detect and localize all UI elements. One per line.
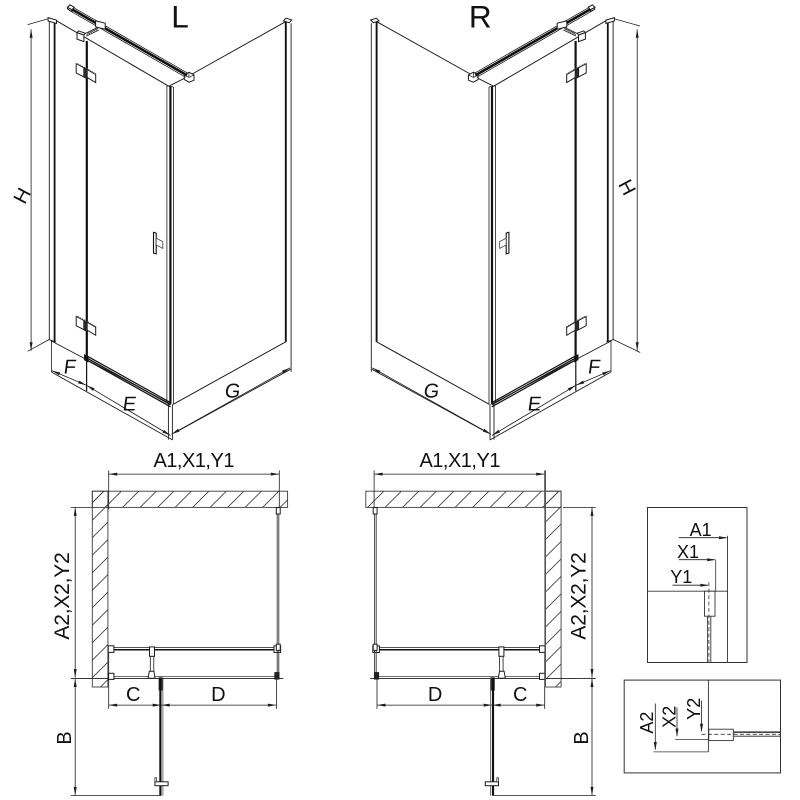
svg-text:L: L	[171, 0, 189, 35]
svg-text:X2: X2	[659, 706, 679, 728]
svg-text:A2: A2	[637, 712, 657, 734]
svg-text:A2,X2,Y2: A2,X2,Y2	[568, 552, 591, 639]
svg-text:G: G	[223, 381, 242, 403]
svg-text:B: B	[571, 731, 593, 744]
svg-text:C: C	[513, 684, 527, 706]
svg-text:A2,X2,Y2: A2,X2,Y2	[51, 552, 74, 639]
svg-text:A1,X1,Y1: A1,X1,Y1	[419, 450, 500, 472]
svg-text:C: C	[126, 684, 140, 706]
svg-text:D: D	[428, 684, 442, 706]
svg-text:A1,X1,Y1: A1,X1,Y1	[153, 450, 234, 472]
svg-text:Y1: Y1	[670, 567, 692, 587]
svg-text:Y2: Y2	[684, 698, 704, 720]
svg-text:G: G	[422, 381, 441, 403]
svg-text:B: B	[54, 731, 76, 744]
svg-text:X1: X1	[677, 542, 699, 562]
svg-text:A1: A1	[690, 520, 712, 540]
svg-text:R: R	[469, 0, 492, 35]
svg-text:D: D	[211, 684, 225, 706]
